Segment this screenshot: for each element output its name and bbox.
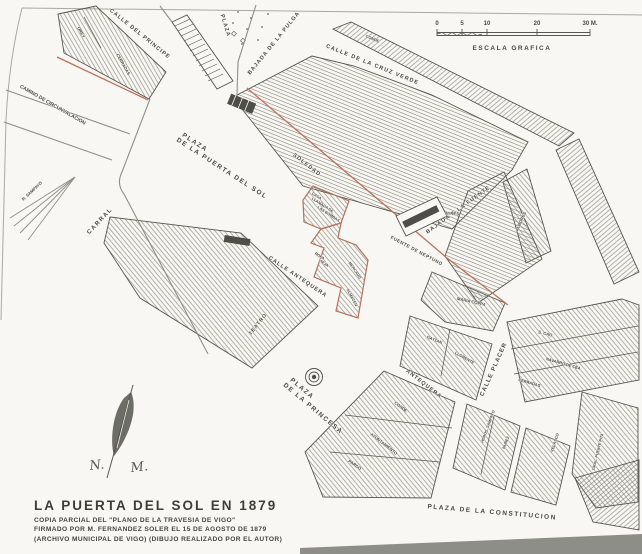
title-block: LA PUERTA DEL SOL EN 1879 COPIA PARCIAL … — [34, 498, 282, 544]
scale-tick-label: 30 M. — [582, 21, 597, 27]
parcel-label-ayres: AYRES — [445, 211, 460, 217]
block-orey-cerradas — [58, 6, 166, 99]
scale-tick-label: 5 — [460, 21, 464, 27]
map-subtitle-line2: FIRMADO POR M. FERNANDEZ SOLER EL 15 DE … — [34, 525, 282, 534]
bottom-shadow — [300, 534, 642, 554]
parcel-label-r-sampayo: R. SAMPAYO — [21, 180, 44, 202]
scale-tick-label: 20 — [534, 21, 541, 27]
street-label-camino-de-circunvalacion: CAMINO DE CIRCUNVALACION — [18, 84, 86, 127]
block-hdros-sampayo — [453, 404, 520, 490]
map-canvas: 05102030 M. ESCALA GRAFICA N. M. CALLE D… — [0, 0, 642, 554]
scale-tick-label: 10 — [484, 21, 491, 27]
plaza-label-plaza: PLAZA — [219, 14, 232, 38]
compass-letter-n: N. — [88, 458, 105, 475]
block-velasco — [511, 428, 570, 505]
scale-tick-label: 0 — [435, 21, 439, 27]
block-right-wedge — [556, 139, 639, 284]
block-navarro-cea — [507, 299, 639, 402]
street-label-fuente-de-neptuno: FUENTE DE NEPTUNO — [390, 235, 444, 267]
fountain-symbol — [306, 369, 323, 386]
block-teatro — [104, 217, 318, 368]
sampayo-road-fork — [10, 177, 75, 240]
plaza-label-de-la-princesa: DE LA PRINCESA — [282, 382, 344, 436]
scale-caption: ESCALA GRAFICA — [473, 45, 552, 52]
scale-bar: 05102030 M. ESCALA GRAFICA — [435, 21, 598, 52]
north-arrow: N. M. — [88, 385, 149, 478]
map-title: LA PUERTA DEL SOL EN 1879 — [34, 498, 282, 513]
block-mercado — [311, 223, 368, 318]
plaza-label-de-la-puerta-del-sol: DE LA PUERTA DEL SOL — [175, 137, 268, 201]
map-sheet: 05102030 M. ESCALA GRAFICA N. M. CALLE D… — [0, 0, 642, 554]
plaza-dots — [232, 11, 269, 45]
compass-letter-m: M. — [129, 459, 149, 476]
street-label-plaza-de-la-constitucion: PLAZA DE LA CONSTITUCION — [427, 503, 557, 521]
map-subtitle-line1: COPIA PARCIAL DEL "PLANO DE LA TRAVESIA … — [34, 516, 282, 525]
map-subtitle-line3: (ARCHIVO MUNICIPAL DE VIGO) (DIBUJO REAL… — [34, 535, 282, 544]
